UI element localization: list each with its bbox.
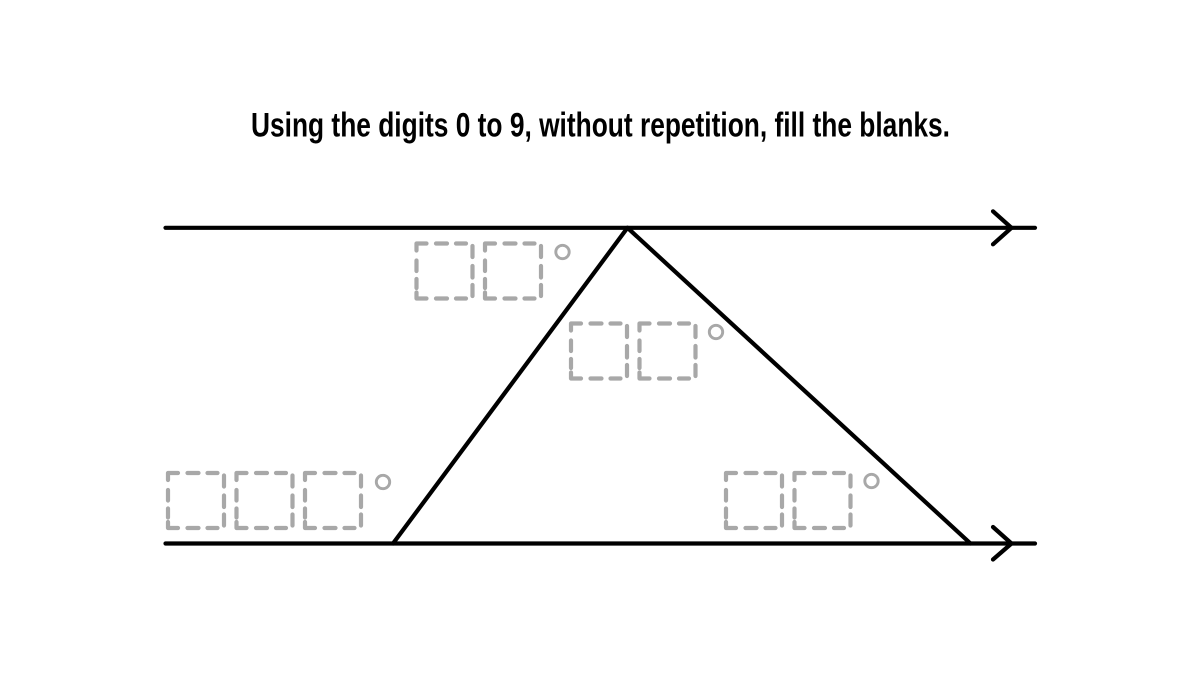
svg-text:Using the digits 0 to 9, witho: Using the digits 0 to 9, without repetit…	[251, 107, 950, 145]
